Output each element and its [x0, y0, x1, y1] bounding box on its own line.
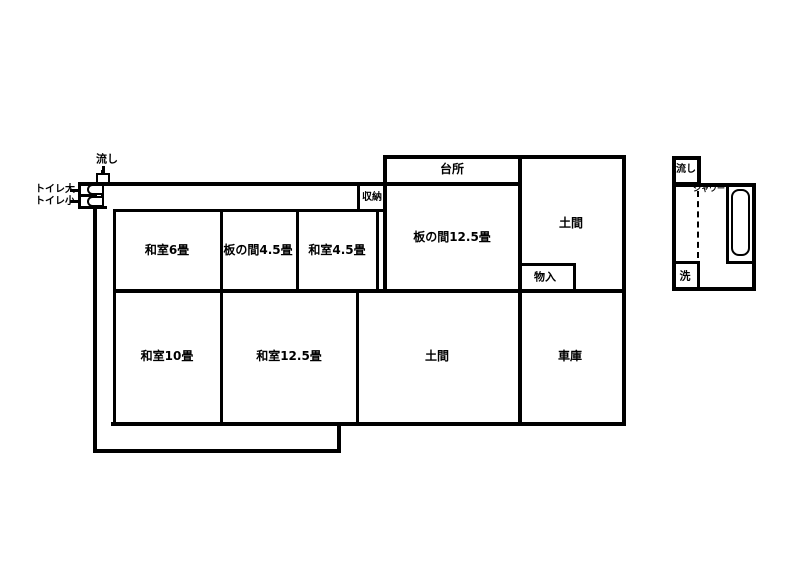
wall-rooms-left: [113, 209, 116, 425]
sink-tick: [102, 166, 105, 174]
wall-divider-2: [296, 209, 299, 292]
wall-kitchen-left: [383, 155, 387, 293]
wall-tub-bottom: [726, 261, 756, 264]
shower-partition-dashed-line: [697, 191, 699, 258]
room-label-kitchen: 台所: [440, 163, 464, 175]
wall-tub-left: [726, 186, 729, 264]
room-label-garage: 車庫: [558, 350, 582, 362]
wall-left-outer: [93, 182, 97, 453]
fixture-label-sink: 流し: [96, 154, 118, 165]
floor-plan: 台所 収納 板の間12.5畳 土間 物入 和室6畳 板の間4.5畳 和室4.5畳…: [0, 0, 800, 566]
wall-veranda-jog: [337, 425, 341, 453]
room-label-doma-lower: 土間: [425, 350, 449, 362]
wall-mid-horizontal: [113, 289, 622, 293]
wall-top-outer: [383, 155, 626, 159]
room-label-washitsu-12-5: 和室12.5畳: [256, 350, 322, 362]
outbuilding-label-shower: シャワー: [693, 185, 725, 193]
wall-divider-1: [220, 209, 223, 425]
wall-monoire-top: [518, 263, 576, 266]
wall-rooms-right-upper: [376, 209, 379, 292]
room-label-storage: 収納: [362, 193, 382, 203]
wall-right-outer: [622, 155, 626, 426]
sink-icon: [96, 173, 110, 184]
wall-wash-top: [674, 261, 700, 264]
wall-divider-3: [356, 289, 359, 425]
wall-wash-right: [697, 261, 700, 291]
wall-monoire-right: [573, 263, 576, 292]
wall-upper-horizontal: [78, 182, 522, 186]
room-label-washitsu-4-5: 和室4.5畳: [308, 244, 365, 256]
toilet-large-bowl-icon: [87, 184, 102, 195]
room-label-doma-upper: 土間: [559, 217, 583, 229]
room-label-washitsu-6: 和室6畳: [145, 244, 189, 256]
wall-bottom-veranda: [93, 449, 341, 453]
fixture-label-toilet-large: トイレ大: [35, 185, 75, 195]
wall-storage-left: [357, 184, 360, 212]
outbuilding-label-sink: 流し: [676, 165, 696, 175]
outbuilding-label-wash: 洗: [680, 271, 691, 282]
room-label-itanoma-12-5: 板の間12.5畳: [413, 231, 491, 243]
room-label-itanoma-4-5: 板の間4.5畳: [223, 244, 292, 256]
room-label-monoire: 物入: [534, 272, 556, 283]
fixture-label-toilet-small: トイレ小: [35, 197, 75, 207]
room-label-washitsu-10: 和室10畳: [141, 350, 194, 362]
toilet-small-bowl-icon: [87, 196, 102, 207]
wall-rooms-top: [113, 209, 387, 212]
bathtub-icon: [731, 189, 750, 256]
wall-bottom-rooms: [111, 422, 626, 426]
